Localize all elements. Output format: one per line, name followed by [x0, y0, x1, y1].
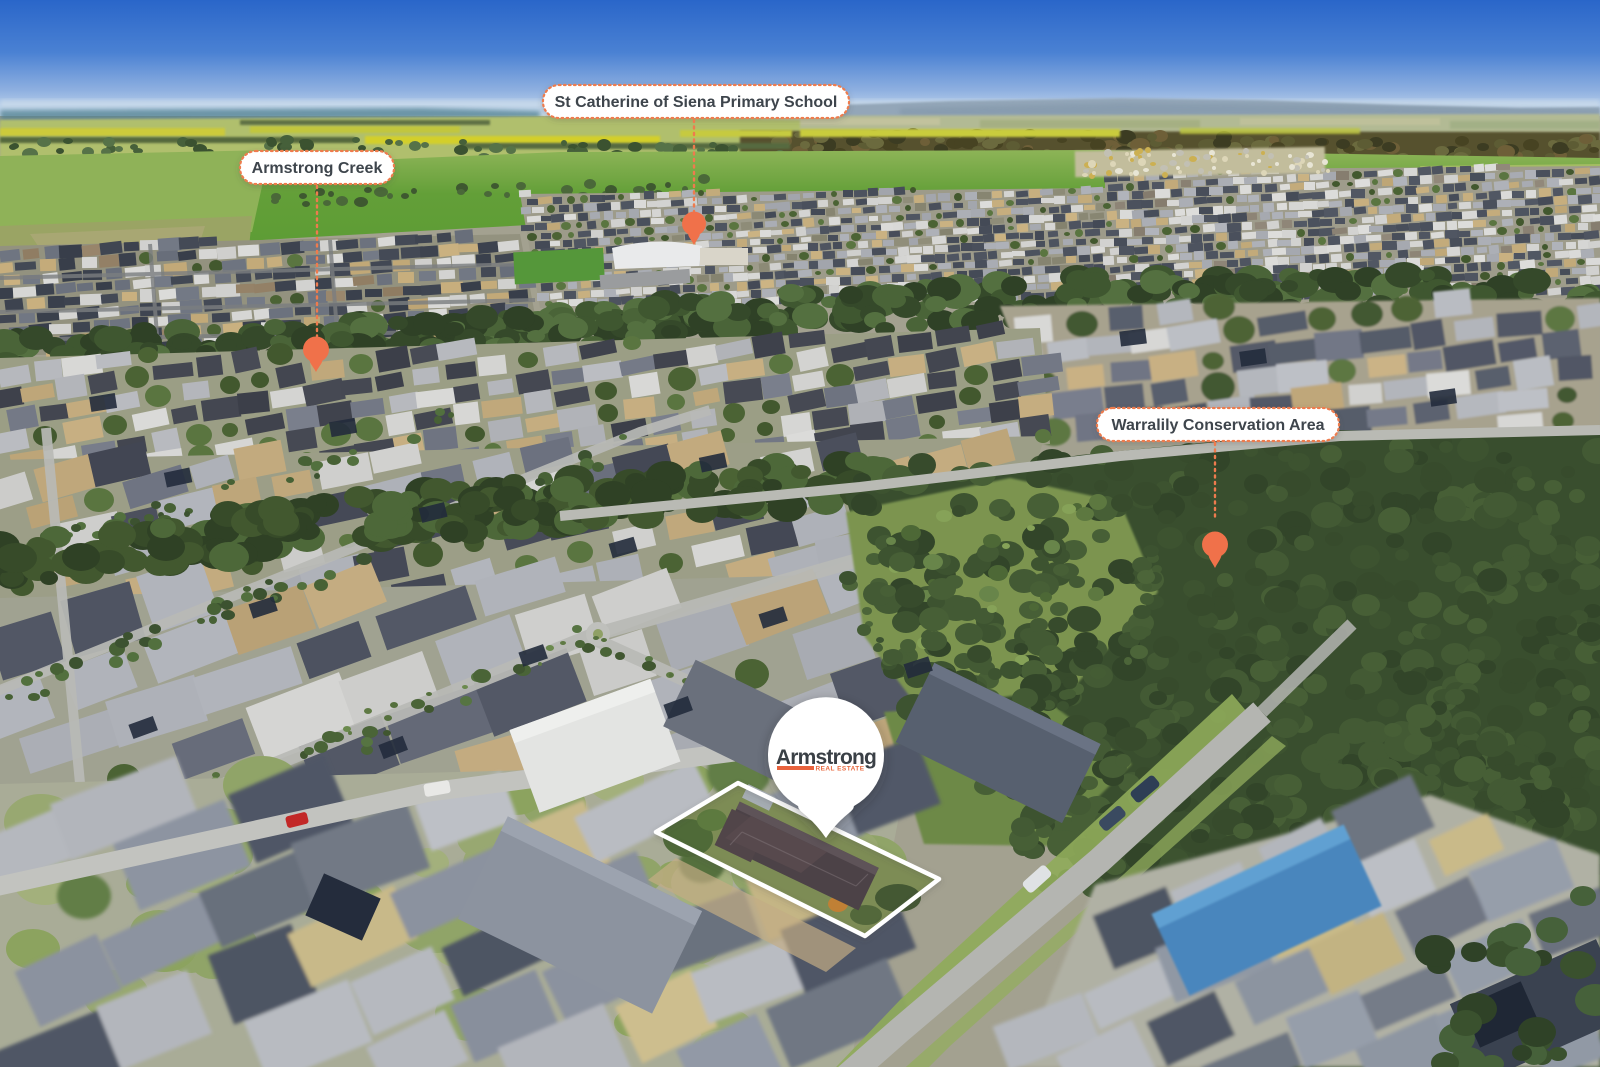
svg-text:REAL ESTATE: REAL ESTATE	[815, 766, 864, 773]
svg-text:Armstrong Creek: Armstrong Creek	[252, 160, 383, 177]
svg-text:Warralily Conservation Area: Warralily Conservation Area	[1111, 417, 1324, 434]
svg-text:St Catherine of Siena Primary: St Catherine of Siena Primary School	[555, 94, 838, 111]
